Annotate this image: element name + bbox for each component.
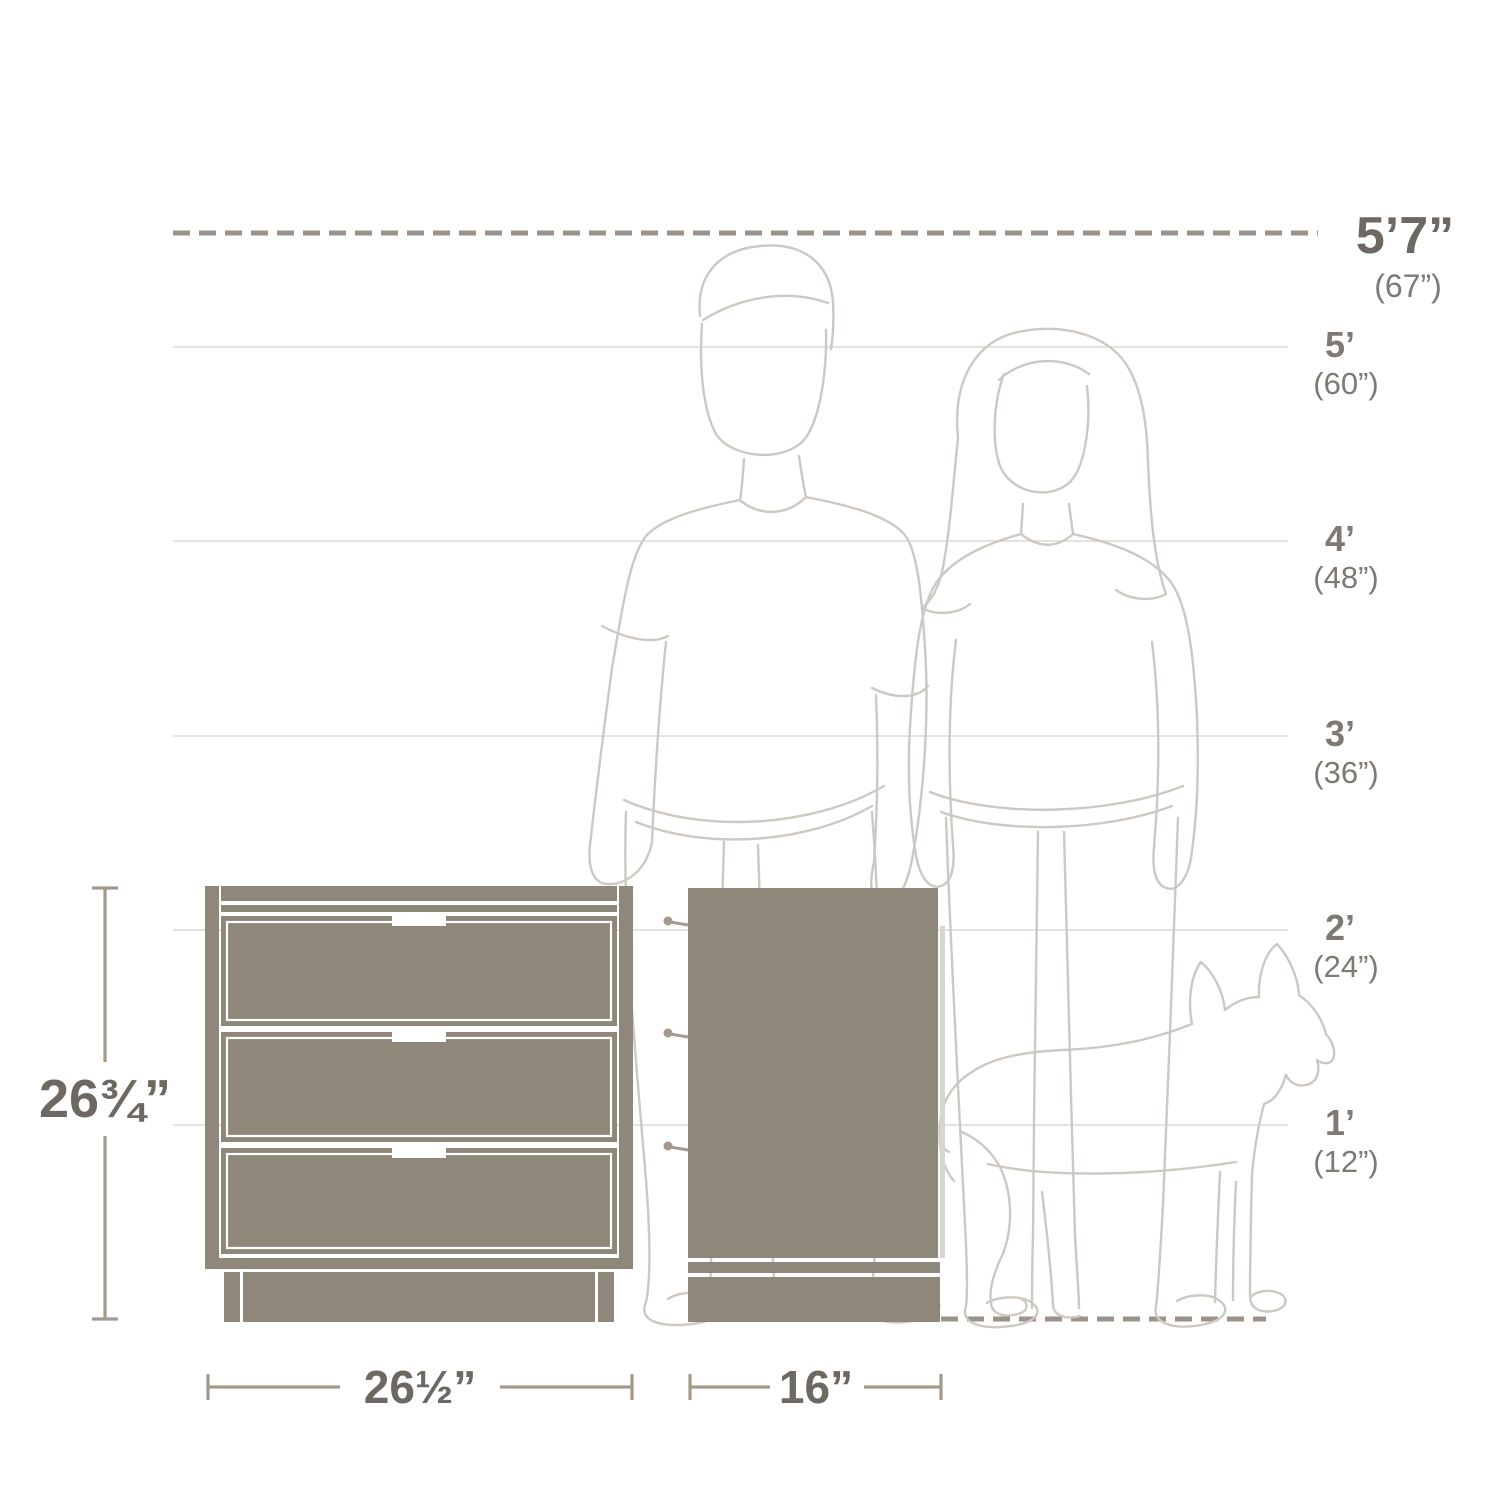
dog-hind-leg-line: [962, 1132, 1027, 1316]
dog-belly-line: [988, 1162, 1236, 1174]
diagram-svg: 26¾” 26½” 16” 5’7” (67”) 5’ (60”) 4’ (48…: [0, 0, 1500, 1500]
marker-4ft-label: 4’: [1325, 518, 1355, 559]
front-second-rail: [221, 905, 617, 912]
side-pull-3-knob: [664, 1142, 673, 1151]
height-dimension: 26¾”: [39, 888, 171, 1319]
side-bottom-rail: [688, 1262, 940, 1273]
marker-2ft-inches: (24”): [1313, 949, 1378, 984]
dog-left-ear-line: [1190, 962, 1225, 1024]
dog-figure: [940, 944, 1335, 1318]
man-right-sleeve-line: [872, 686, 928, 696]
woman-hair-left-line: [922, 438, 970, 613]
side-pull-3: [670, 1147, 688, 1150]
dog-head-top-line: [1225, 997, 1259, 1010]
dog-muzzle-line: [1286, 995, 1334, 1085]
drawer-3-handle: [392, 1148, 446, 1158]
man-face-line: [701, 324, 826, 455]
width-dimension-label: 26½”: [364, 1361, 477, 1413]
front-left-leg: [224, 1272, 240, 1322]
marker-3ft-inches: (36”): [1313, 755, 1378, 790]
side-drawer-pulls: [664, 917, 689, 1151]
dog-right-ear-line: [1259, 944, 1299, 997]
front-right-leg: [598, 1272, 614, 1322]
height-scale-labels: 5’7” (67”) 5’ (60”) 4’ (48”) 3’ (36”) 2’…: [1313, 207, 1454, 1179]
side-pull-1: [670, 922, 688, 925]
marker-5ft7-inches: (67”): [1374, 268, 1442, 304]
woman-collar-line: [1022, 535, 1072, 545]
front-bottom-rail: [205, 1258, 633, 1269]
height-dimension-label: 26¾”: [39, 1069, 171, 1129]
side-base-panel: [688, 1277, 940, 1322]
depth-dimension: 16”: [690, 1361, 941, 1413]
man-hem-line: [624, 786, 884, 839]
woman-fringe-line: [999, 361, 1089, 380]
man-collar-line: [741, 498, 805, 512]
dresser-side-view: [664, 888, 946, 1322]
front-top-rail: [221, 886, 617, 901]
width-dimension: 26½”: [208, 1361, 632, 1413]
marker-2ft-label: 2’: [1325, 907, 1355, 948]
woman-face-line: [995, 374, 1089, 492]
front-base-panel: [243, 1272, 595, 1322]
side-panel: [688, 888, 938, 1258]
drawer-1-handle: [392, 916, 446, 926]
marker-5ft7-label: 5’7”: [1356, 207, 1454, 265]
front-left-stile: [205, 886, 219, 1258]
drawer-2-handle: [392, 1032, 446, 1042]
side-pull-1-knob: [664, 917, 673, 926]
woman-hair-line: [957, 329, 1166, 599]
man-left-sleeve-line: [602, 626, 668, 640]
marker-5ft-inches: (60”): [1313, 366, 1378, 401]
woman-right-arm-line: [1073, 534, 1198, 889]
man-left-arm-line: [590, 500, 740, 884]
woman-hem-line: [930, 786, 1183, 827]
man-right-arm-line: [806, 497, 926, 906]
dresser-front-view: [205, 886, 633, 1322]
man-neck-line: [740, 456, 806, 500]
marker-5ft-label: 5’: [1325, 324, 1355, 365]
drawer-1: [221, 916, 617, 1026]
marker-1ft-inches: (12”): [1313, 1144, 1378, 1179]
drawer-3: [221, 1148, 617, 1254]
dimension-diagram: 26¾” 26½” 16” 5’7” (67”) 5’ (60”) 4’ (48…: [0, 0, 1500, 1500]
dog-back-line: [940, 1024, 1192, 1181]
woman-neck-line: [1021, 504, 1073, 534]
marker-1ft-label: 1’: [1325, 1102, 1355, 1143]
side-pull-2: [670, 1034, 688, 1037]
side-pull-2-knob: [664, 1029, 673, 1038]
marker-4ft-inches: (48”): [1313, 560, 1378, 595]
man-fringe-line: [703, 296, 828, 320]
dog-front-leg-line: [1215, 1172, 1286, 1311]
depth-dimension-label: 16”: [779, 1361, 853, 1413]
woman-figure: [909, 329, 1225, 1327]
side-front-edge: [940, 926, 945, 1258]
marker-3ft-label: 3’: [1325, 713, 1355, 754]
front-right-stile: [619, 886, 633, 1258]
drawer-2: [221, 1032, 617, 1142]
woman-right-leg-line: [1064, 818, 1178, 1308]
